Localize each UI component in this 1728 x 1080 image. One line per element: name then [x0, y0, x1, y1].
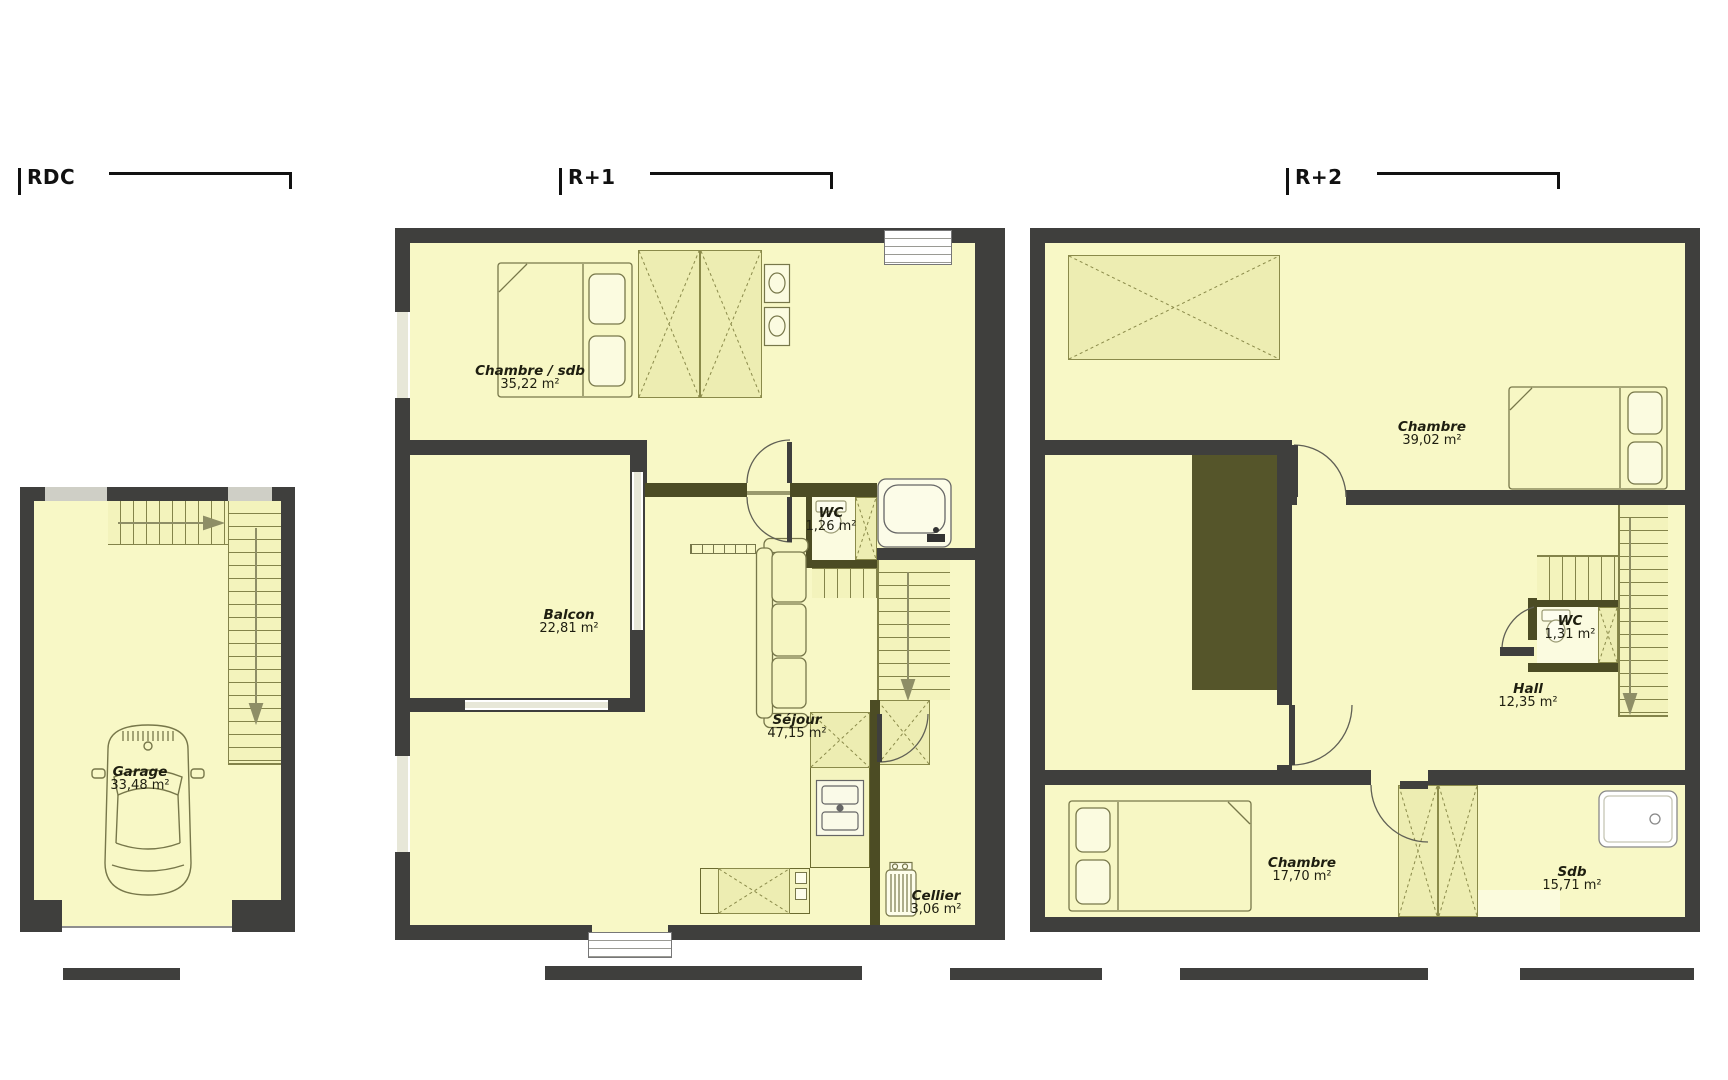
- room-label-r1-4: Cellier3,06 m²: [911, 889, 962, 917]
- room-area: 15,71 m²: [1542, 879, 1601, 893]
- room-name: Sdb: [1542, 865, 1601, 879]
- room-label-r1-3: Séjour47,15 m²: [767, 713, 826, 741]
- room-area: 1,26 m²: [806, 520, 857, 534]
- room-name: WC: [1545, 614, 1596, 628]
- room-area: 39,02 m²: [1398, 434, 1466, 448]
- room-area: 12,35 m²: [1498, 696, 1557, 710]
- cropped-plan-edge: [1180, 968, 1428, 980]
- stair-direction-arrows: [118, 517, 1636, 722]
- door-swing-overlay: [0, 0, 1728, 1080]
- room-label-r2-1: WC1,31 m²: [1545, 614, 1596, 642]
- room-name: Chambre: [1398, 420, 1466, 434]
- room-label-r1-1: WC1,26 m²: [806, 506, 857, 534]
- room-label-r1-0: Chambre / sdb35,22 m²: [475, 364, 585, 392]
- cropped-plan-edge: [950, 968, 1102, 980]
- room-name: Balcon: [539, 608, 598, 622]
- room-name: Séjour: [767, 713, 826, 727]
- room-area: 47,15 m²: [767, 727, 826, 741]
- room-name: Chambre / sdb: [475, 364, 585, 378]
- room-area: 17,70 m²: [1268, 870, 1336, 884]
- room-name: Cellier: [911, 889, 962, 903]
- floor-plans-canvas: RDC R+1 R+2: [0, 0, 1728, 1080]
- room-area: 33,48 m²: [110, 779, 169, 793]
- room-name: Garage: [110, 765, 169, 779]
- cropped-plan-edge: [1520, 968, 1694, 980]
- room-area: 22,81 m²: [539, 622, 598, 636]
- room-name: WC: [806, 506, 857, 520]
- room-label-r2-2: Hall12,35 m²: [1498, 682, 1557, 710]
- room-label-r2-0: Chambre39,02 m²: [1398, 420, 1466, 448]
- room-label-rdc-0: Garage33,48 m²: [110, 765, 169, 793]
- room-area: 3,06 m²: [911, 903, 962, 917]
- cropped-plan-edge: [545, 966, 862, 980]
- room-name: Chambre: [1268, 856, 1336, 870]
- room-area: 1,31 m²: [1545, 628, 1596, 642]
- room-label-r1-2: Balcon22,81 m²: [539, 608, 598, 636]
- room-area: 35,22 m²: [475, 378, 585, 392]
- door-leaves: [787, 442, 1534, 789]
- room-label-r2-3: Chambre17,70 m²: [1268, 856, 1336, 884]
- room-label-r2-4: Sdb15,71 m²: [1542, 865, 1601, 893]
- room-name: Hall: [1498, 682, 1557, 696]
- cropped-plan-edge: [63, 968, 180, 980]
